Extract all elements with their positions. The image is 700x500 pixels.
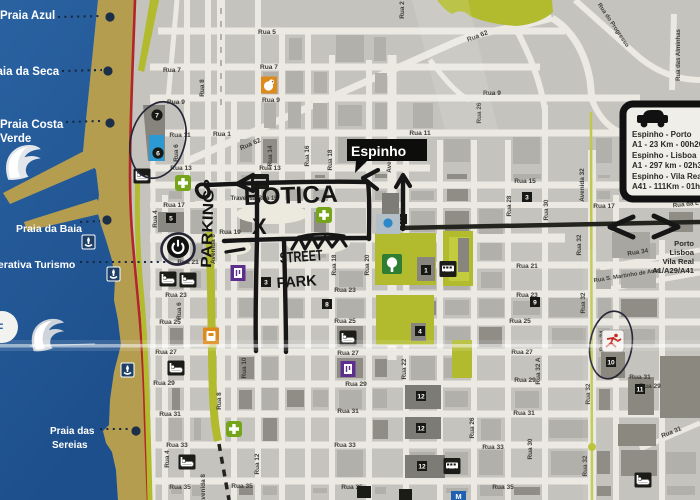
svg-text:STREET: STREET [279, 247, 323, 267]
svg-text:Rua 23: Rua 23 [334, 287, 356, 294]
svg-text:Rua 29: Rua 29 [153, 380, 175, 387]
svg-text:Rua 1: Rua 1 [213, 131, 231, 138]
svg-text:Rua 15: Rua 15 [514, 178, 536, 185]
svg-text:Rua 31: Rua 31 [159, 411, 181, 418]
svg-text:Rua 18: Rua 18 [331, 254, 338, 275]
svg-text:Rua 17: Rua 17 [163, 202, 185, 209]
svg-text:Rua 28: Rua 28 [506, 195, 513, 216]
svg-text:Rua 11: Rua 11 [169, 132, 191, 139]
svg-text:F: F [0, 321, 3, 335]
svg-text:Rua 33: Rua 33 [482, 444, 504, 451]
svg-text:Rua das Alminhas: Rua das Alminhas [676, 28, 682, 80]
svg-text:3: 3 [525, 194, 529, 201]
svg-text:Rua 11: Rua 11 [409, 130, 431, 137]
svg-text:4: 4 [418, 328, 422, 335]
svg-text:Rua 25: Rua 25 [334, 318, 356, 325]
svg-text:nterativa Turismo: nterativa Turismo [0, 259, 75, 271]
svg-text:Praia das: Praia das [50, 426, 95, 437]
svg-text:Rua 29: Rua 29 [514, 377, 536, 384]
svg-text:Rua 19: Rua 19 [219, 229, 241, 236]
svg-text:Avenida 32: Avenida 32 [579, 168, 586, 202]
svg-text:Rua 12: Rua 12 [254, 453, 261, 474]
svg-text:7: 7 [155, 112, 159, 119]
svg-text:Rua 35: Rua 35 [169, 484, 191, 491]
svg-text:Rua 22: Rua 22 [401, 358, 408, 379]
svg-text:PARK: PARK [276, 272, 317, 292]
svg-text:Rua 27: Rua 27 [337, 350, 359, 357]
svg-text:Rua 5: Rua 5 [258, 29, 276, 36]
svg-text:Rua 35: Rua 35 [231, 483, 253, 490]
svg-text:Espinho - Porto: Espinho - Porto [632, 130, 692, 139]
svg-text:Rua 32 A: Rua 32 A [535, 357, 542, 384]
svg-text:Rua 21: Rua 21 [516, 263, 538, 270]
svg-text:Lisboa: Lisboa [670, 248, 695, 257]
svg-text:X: X [252, 214, 267, 239]
svg-text:12: 12 [417, 425, 425, 432]
svg-text:Rua 4: Rua 4 [152, 210, 159, 228]
svg-text:Rua 25: Rua 25 [509, 318, 531, 325]
svg-text:Rua 9: Rua 9 [262, 97, 280, 104]
svg-text:5: 5 [169, 215, 173, 222]
svg-text:Espinho - Lisboa: Espinho - Lisboa [632, 151, 697, 160]
svg-text:PARKING?: PARKING? [198, 179, 218, 269]
svg-text:Espinho: Espinho [351, 143, 406, 159]
svg-text:Espinho - Vila Real: Espinho - Vila Real [632, 172, 700, 181]
svg-text:M: M [455, 492, 461, 500]
svg-text:12: 12 [418, 463, 426, 470]
svg-text:Praia Costa: Praia Costa [0, 119, 64, 131]
svg-text:3: 3 [264, 279, 268, 286]
svg-text:Rua 7: Rua 7 [260, 64, 278, 71]
svg-text:Rua 8: Rua 8 [216, 392, 223, 410]
svg-text:Rua 33: Rua 33 [166, 442, 188, 449]
svg-text:8: 8 [325, 301, 329, 308]
svg-text:Rua 16: Rua 16 [304, 145, 311, 166]
svg-text:A1 - 23 Km - 00h20 m: A1 - 23 Km - 00h20 m [632, 140, 700, 149]
svg-text:A1 - 297 km - 02h38: A1 - 297 km - 02h38 [632, 161, 700, 170]
svg-text:Rua 30: Rua 30 [543, 199, 550, 220]
svg-text:11: 11 [637, 386, 644, 393]
svg-text:BOTICA: BOTICA [243, 181, 338, 211]
svg-text:Rua 14: Rua 14 [267, 145, 274, 166]
svg-text:Rua 30: Rua 30 [527, 438, 534, 459]
svg-text:Rua 20: Rua 20 [364, 254, 371, 275]
svg-text:Rua 32: Rua 32 [576, 234, 583, 255]
svg-text:Rua 29: Rua 29 [345, 381, 367, 388]
svg-text:Rua 6: Rua 6 [176, 302, 183, 320]
svg-text:Rua 31: Rua 31 [629, 374, 651, 381]
svg-text:Rua 7: Rua 7 [163, 67, 181, 74]
svg-text:1: 1 [424, 267, 428, 274]
svg-text:Porto: Porto [674, 239, 694, 248]
svg-text:A41 - 111Km - 01h16 m: A41 - 111Km - 01h16 m [632, 182, 700, 191]
svg-text:Rua 31: Rua 31 [337, 408, 359, 415]
svg-text:6: 6 [156, 150, 160, 157]
svg-text:Rua 8: Rua 8 [199, 79, 206, 97]
svg-text:Rua 35: Rua 35 [492, 484, 514, 491]
svg-text:Vila Real: Vila Real [662, 257, 694, 266]
svg-text:Verde: Verde [0, 133, 31, 145]
svg-text:Rua 10: Rua 10 [241, 357, 248, 378]
svg-text:Rua 26: Rua 26 [469, 417, 476, 438]
svg-text:A1/A29/A41: A1/A29/A41 [652, 266, 695, 275]
svg-text:12: 12 [417, 393, 425, 400]
svg-text:Praia Azul: Praia Azul [0, 10, 55, 22]
svg-text:9: 9 [533, 299, 537, 306]
svg-text:Rua 18: Rua 18 [327, 149, 334, 170]
svg-text:Praia da Baia: Praia da Baia [16, 223, 82, 235]
svg-text:10: 10 [607, 359, 615, 366]
svg-text:Sereias: Sereias [52, 440, 88, 451]
svg-text:raia da Seca: raia da Seca [0, 66, 60, 78]
svg-text:Rua 4: Rua 4 [164, 450, 171, 468]
svg-text:Rua 31: Rua 31 [513, 410, 535, 417]
svg-text:Rua 17: Rua 17 [593, 203, 615, 210]
svg-text:Rua 23: Rua 23 [165, 292, 187, 299]
svg-text:Avenida 8: Avenida 8 [200, 474, 207, 500]
svg-text:Rua 2: Rua 2 [399, 1, 406, 19]
svg-text:Rua 33: Rua 33 [334, 442, 356, 449]
